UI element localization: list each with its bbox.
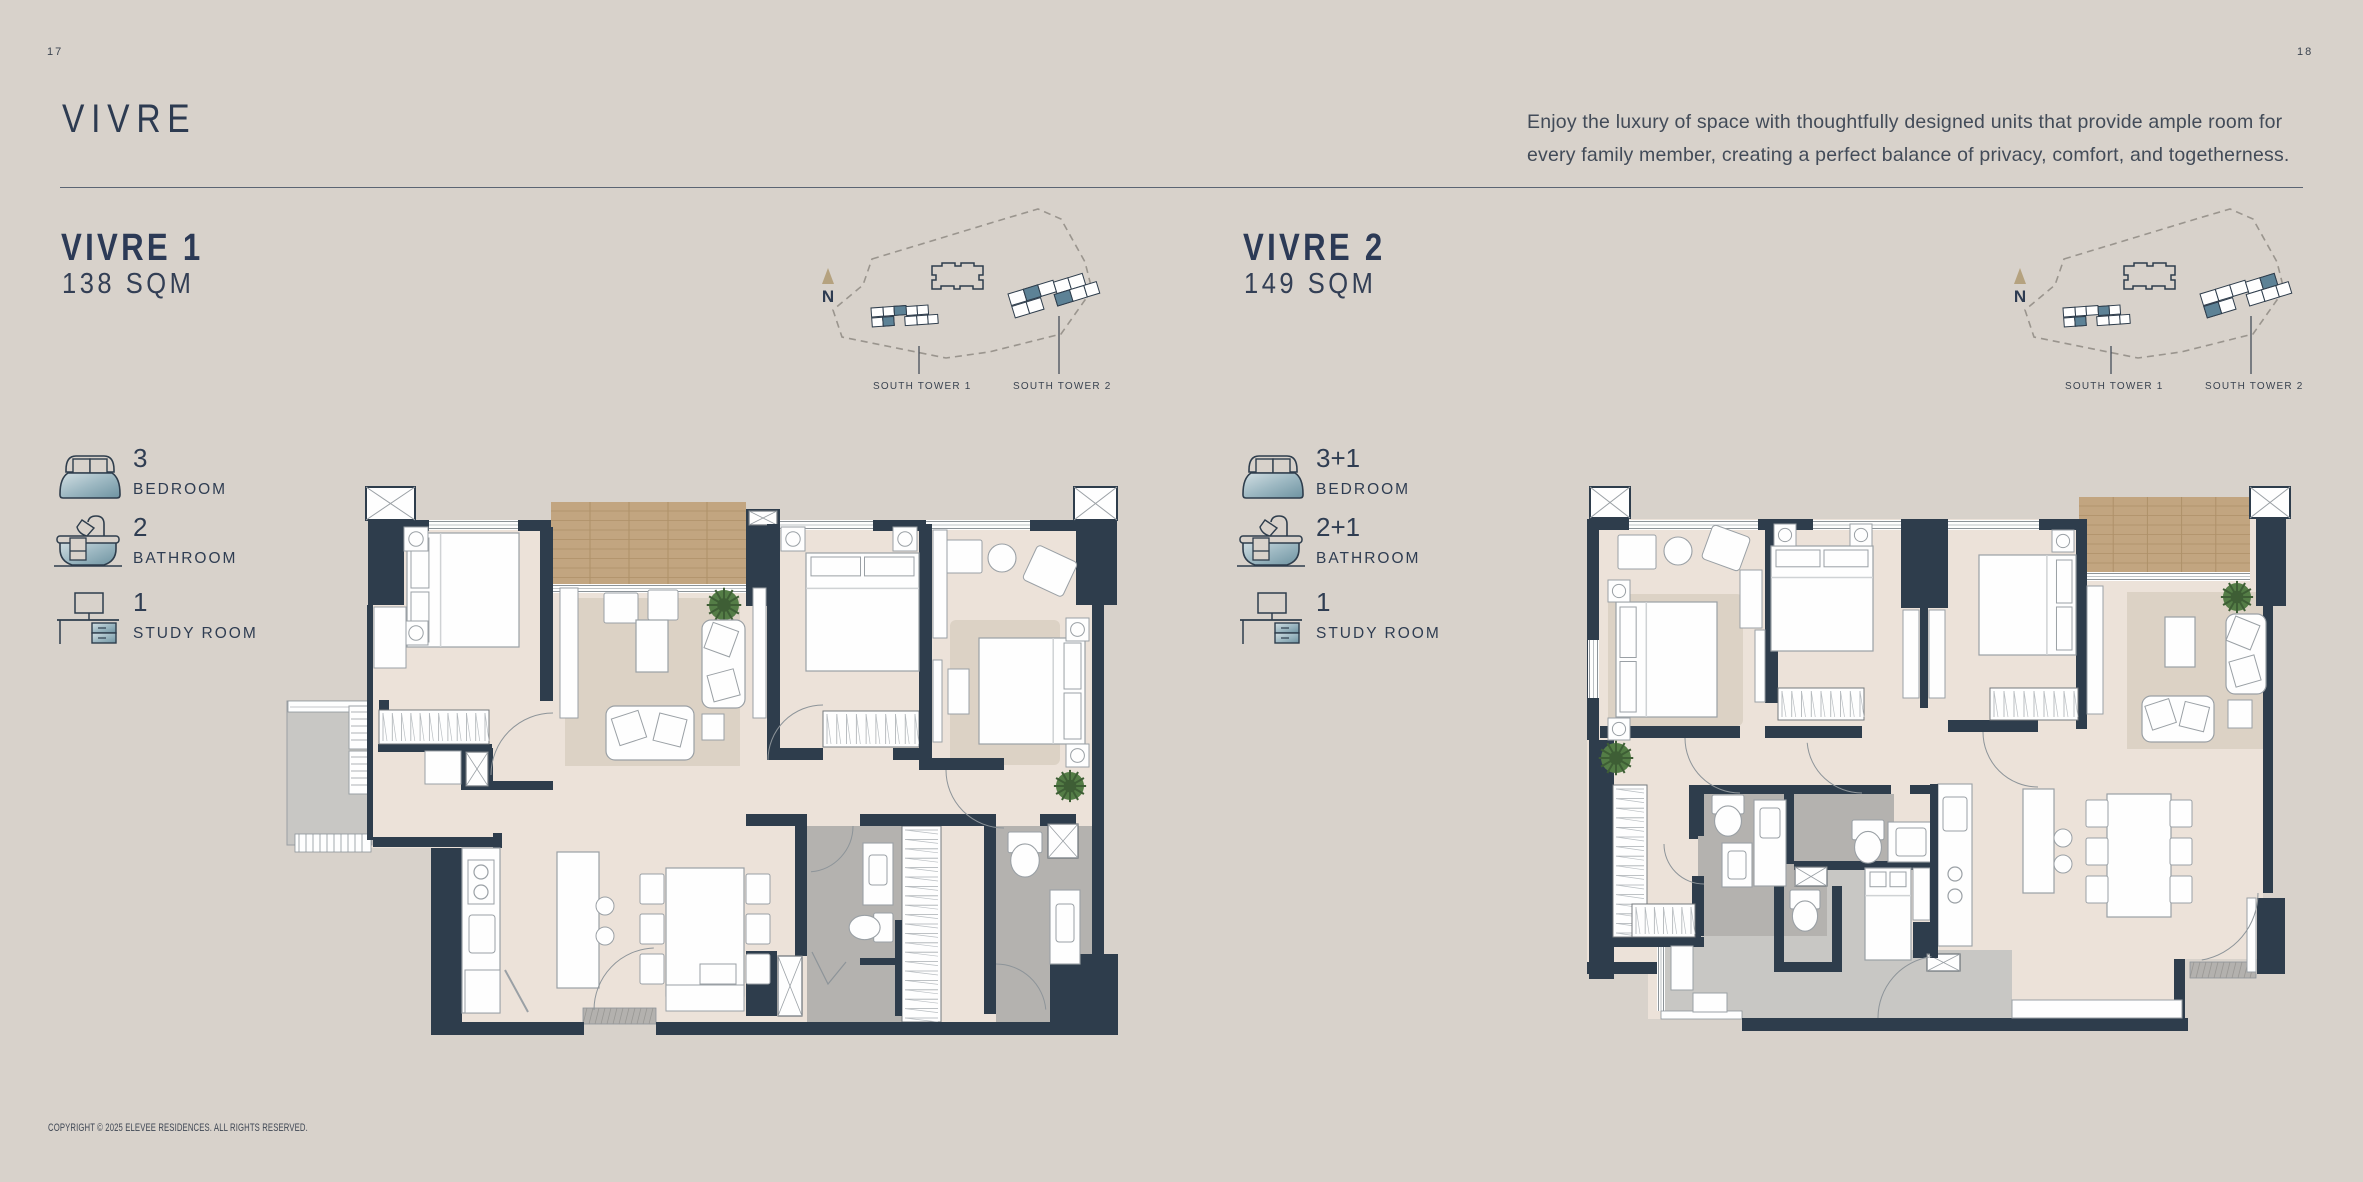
svg-text:N: N — [822, 287, 834, 306]
svg-text:N: N — [2014, 287, 2026, 306]
